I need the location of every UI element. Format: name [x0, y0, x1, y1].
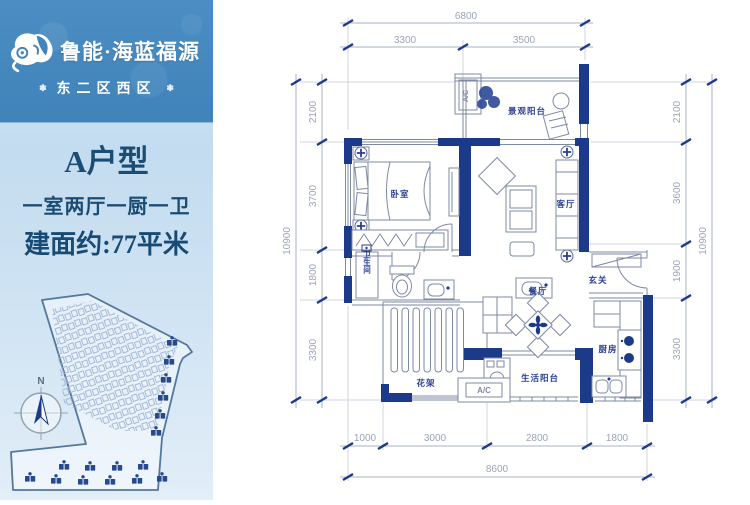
balcony-plant — [477, 86, 500, 109]
dim-bottom-total: 8600 — [486, 464, 509, 475]
pergola-slats — [391, 308, 464, 372]
dim-right-seg: 1900 — [672, 259, 683, 282]
unit-type-title: A户型 — [0, 136, 213, 181]
dim-right-seg: 2100 — [672, 100, 683, 123]
stove — [618, 330, 641, 370]
vanity-sink — [424, 280, 454, 299]
entry-cabinet — [592, 254, 641, 267]
label-ac-bottom: A/C — [477, 386, 491, 395]
compass-north-label: N — [37, 376, 44, 387]
dim-top-seg: 3500 — [513, 35, 536, 46]
label-service-balcony: 生活阳台 — [521, 373, 559, 383]
dim-left-total: 10900 — [282, 227, 293, 255]
fridge — [594, 301, 620, 327]
dining-set — [505, 292, 570, 357]
dim-top-total: 6800 — [455, 11, 478, 22]
dim-bottom-seg: 2800 — [526, 433, 549, 444]
dim-right-seg: 3600 — [672, 181, 683, 204]
unit-area-text: 建面约:77平米 — [0, 224, 213, 261]
stool — [510, 242, 534, 256]
dim-left-seg: 3300 — [308, 338, 319, 361]
label-view-balcony: 景观阳台 — [508, 106, 546, 116]
kitchen-sink — [592, 376, 626, 397]
unit-layout-text: 一室两厅一厨一卫 — [0, 190, 213, 219]
ornament-icon: ❃ — [39, 83, 47, 93]
label-kitchen: 厨房 — [598, 344, 617, 354]
ac-flower-icon — [561, 250, 573, 262]
label-bedroom: 卧室 — [390, 189, 409, 199]
brand-subtitle: 东二区西区 — [57, 80, 157, 96]
toilet — [390, 266, 414, 297]
ac-flower-icon — [355, 147, 367, 159]
dim-bottom-seg: 1000 — [354, 433, 377, 444]
tv-cabinet — [449, 168, 459, 216]
brand-band: 鲁能·海蓝福源 ❃ 东二区西区 ❃ — [0, 0, 213, 123]
promo-panel: 鲁能·海蓝福源 ❃ 东二区西区 ❃ A户型 一室两厅一厨一卫 建面约:77平米 — [0, 0, 213, 500]
floor-plan-drawing: 6800 3300 3500 1000 3000 2800 1800 8600 … — [213, 0, 750, 500]
balcony-table — [553, 93, 569, 109]
balcony-chair — [543, 111, 569, 139]
dim-left-seg: 1800 — [308, 263, 319, 286]
compass: N — [14, 376, 68, 440]
dim-top-seg: 3300 — [394, 35, 417, 46]
label-entry: 玄关 — [588, 275, 607, 285]
cloud-swirl-logo-icon — [7, 26, 61, 76]
floor-plan-panel: 6800 3300 3500 1000 3000 2800 1800 8600 … — [213, 0, 750, 500]
dim-right-total: 10900 — [698, 227, 709, 255]
site-plan-map: N — [0, 283, 213, 500]
label-living: 客厅 — [555, 199, 575, 209]
dim-right-seg: 3300 — [672, 337, 683, 360]
label-pergola: 花架 — [416, 378, 435, 388]
coffee-table — [506, 186, 536, 232]
ornament-icon: ❃ — [166, 83, 174, 93]
label-dining: 餐厅 — [527, 286, 547, 296]
label-bathroom: 卫生间 — [362, 250, 371, 274]
dim-bottom-seg: 3000 — [424, 433, 447, 444]
flyer-page: { "colors": { "wall_navy": "#1c3a8a", "b… — [0, 0, 750, 500]
brand-subtitle-row: ❃ 东二区西区 ❃ — [0, 78, 213, 98]
label-ac-top: A/C — [463, 90, 470, 102]
dim-left-seg: 2100 — [308, 100, 319, 123]
dim-left-seg: 3700 — [308, 184, 319, 207]
ac-flower-icon — [561, 146, 573, 158]
dim-bottom-seg: 1800 — [606, 433, 629, 444]
brand-name: 鲁能·海蓝福源 — [60, 36, 210, 66]
